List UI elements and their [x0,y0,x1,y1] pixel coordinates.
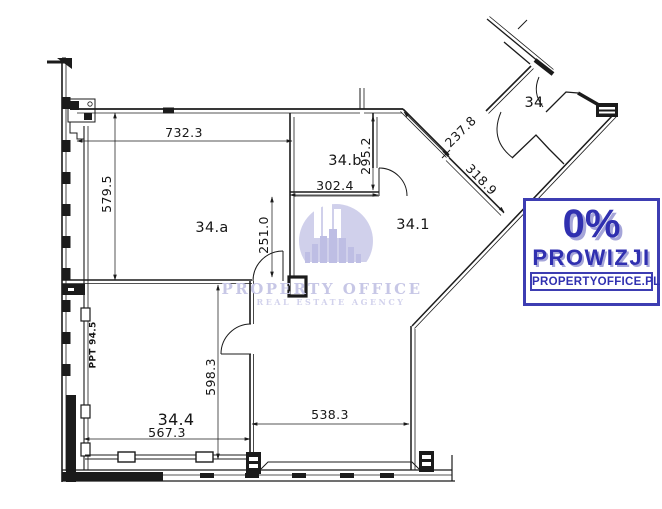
shaft-label-ppt: PPT 94.5 [90,321,99,368]
dim-302-4: 302.4 [316,180,354,193]
dim-538-3: 538.3 [311,409,349,422]
dim-567-3: 567.3 [148,427,186,440]
room-label-341: 34.1 [396,218,430,233]
badge-website-text: PROPERTYOFFICE.PL [532,276,660,288]
room-label-34: 34 [524,96,543,111]
badge-prowizji-text: PROWIZJI [526,246,657,269]
room-label-34a: 34.a [195,221,228,236]
dim-295-2: 295.2 [360,137,373,175]
watermark-logo-graphic [299,200,373,279]
floor-plan-page: 34.a 34.b 34.1 34.4 34 732.3 579.5 302.4… [0,0,662,509]
watermark-tagline: REAL ESTATE AGENCY [257,297,406,307]
dim-251-0: 251.0 [258,216,271,254]
badge-website-box: PROPERTYOFFICE.PL [530,272,653,291]
watermark-brand-name: PROPERTY OFFICE [221,280,422,298]
dim-732-3: 732.3 [165,127,203,140]
dim-579-5: 579.5 [101,175,114,213]
badge-percent-text: 0% [526,202,657,246]
room-label-34b: 34.b [328,154,361,169]
promo-badge: 0% PROWIZJI PROPERTYOFFICE.PL [523,198,660,306]
dim-598-3: 598.3 [205,358,218,396]
